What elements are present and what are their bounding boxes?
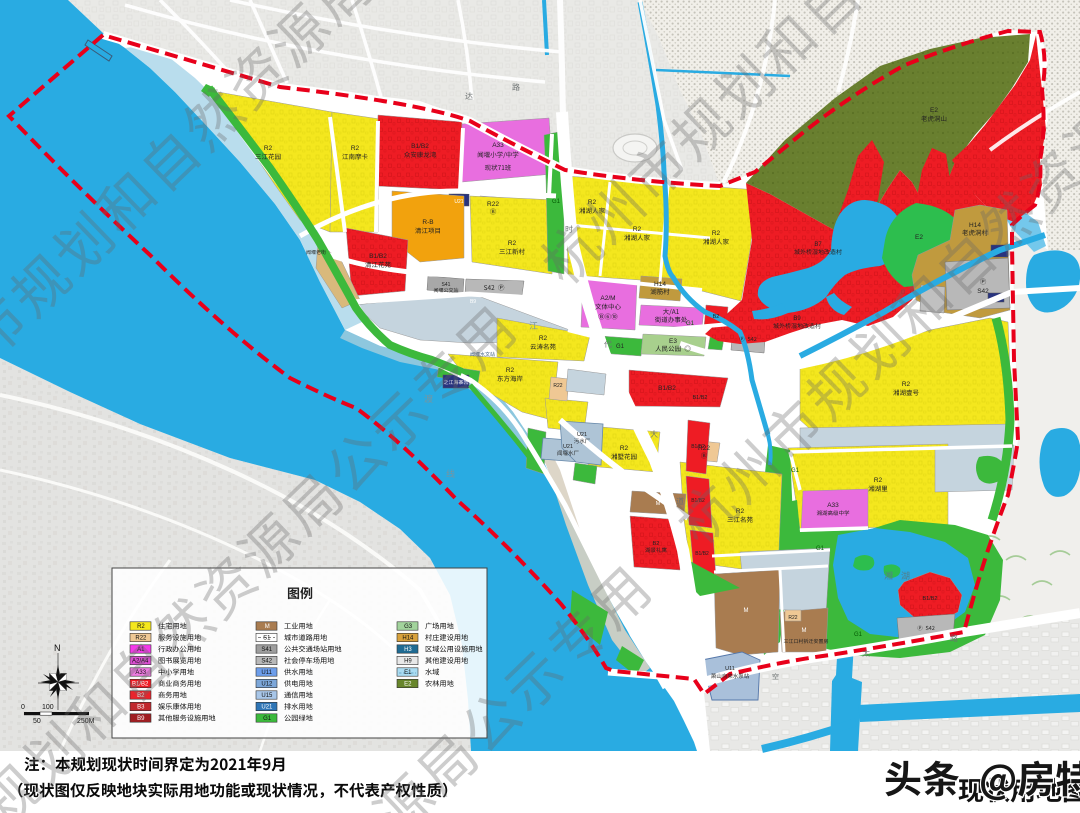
svg-text:M: M: [265, 624, 270, 630]
svg-text:E3: E3: [669, 338, 677, 345]
svg-text:100: 100: [42, 704, 54, 711]
svg-text:N: N: [54, 643, 61, 653]
svg-text:R22: R22: [487, 201, 499, 208]
svg-text:B1/B2: B1/B2: [693, 395, 708, 401]
svg-text:R2: R2: [508, 240, 517, 247]
svg-text:R22: R22: [788, 615, 797, 621]
svg-text:B2: B2: [713, 314, 720, 320]
svg-text:B7: B7: [814, 242, 822, 248]
svg-text:R2: R2: [712, 230, 721, 237]
svg-text:A2/M: A2/M: [600, 295, 615, 302]
svg-text:M: M: [656, 501, 661, 507]
svg-text:R2: R2: [506, 367, 515, 374]
svg-text:G1: G1: [686, 321, 695, 327]
svg-text:0: 0: [21, 704, 25, 711]
svg-text:R-B: R-B: [422, 219, 433, 226]
svg-text:E1: E1: [404, 670, 412, 676]
svg-text:B1/B2: B1/B2: [658, 385, 676, 392]
svg-text:U21: U21: [563, 444, 573, 450]
svg-text:U21: U21: [261, 705, 273, 711]
svg-text:E2: E2: [915, 234, 923, 241]
svg-text:S42: S42: [261, 659, 272, 665]
svg-text:H14: H14: [969, 222, 981, 229]
svg-text:H9: H9: [404, 659, 412, 665]
svg-text:U15: U15: [261, 693, 273, 699]
svg-text:U11: U11: [725, 666, 735, 672]
svg-text:H3: H3: [404, 647, 412, 653]
svg-text:R22: R22: [553, 383, 562, 389]
svg-text:E2: E2: [930, 107, 938, 114]
svg-text:B1/B2: B1/B2: [691, 444, 705, 450]
svg-text:G1: G1: [854, 632, 863, 638]
svg-text:B1/B2: B1/B2: [923, 596, 938, 602]
svg-text:R2: R2: [351, 145, 360, 152]
svg-text:B2: B2: [653, 541, 660, 547]
svg-text:B9: B9: [137, 716, 145, 722]
svg-text:U21: U21: [454, 199, 463, 205]
svg-text:S42: S42: [977, 288, 989, 295]
svg-text:R2: R2: [620, 445, 629, 452]
svg-text:R2: R2: [539, 335, 548, 342]
svg-text:M: M: [802, 628, 807, 634]
svg-text:G1: G1: [263, 716, 272, 722]
svg-text:R2: R2: [902, 381, 911, 388]
svg-text:M: M: [744, 608, 749, 614]
svg-text:G3: G3: [404, 624, 413, 630]
svg-text:50: 50: [33, 718, 41, 725]
svg-text:U11: U11: [261, 670, 272, 676]
svg-text:R2: R2: [874, 477, 883, 484]
svg-text:H14: H14: [654, 281, 666, 288]
svg-text:A33: A33: [492, 142, 504, 149]
svg-text:E2: E2: [404, 682, 412, 688]
svg-text:B9: B9: [793, 316, 801, 322]
svg-text:U21: U21: [577, 432, 587, 438]
svg-text:A33: A33: [827, 502, 839, 509]
svg-text:U12: U12: [261, 682, 273, 688]
svg-text:R2: R2: [137, 624, 145, 630]
svg-text:R2: R2: [264, 145, 273, 152]
svg-text:G1: G1: [616, 344, 625, 350]
svg-text:B1/B2: B1/B2: [695, 551, 709, 557]
svg-text:H14: H14: [402, 636, 414, 642]
svg-text:R2: R2: [633, 226, 642, 233]
svg-text:B1/B2: B1/B2: [369, 253, 387, 260]
svg-text:S41: S41: [442, 282, 451, 288]
svg-text:R22: R22: [135, 636, 147, 642]
svg-text:B3: B3: [137, 705, 145, 711]
svg-text:G1: G1: [816, 546, 825, 552]
svg-text:G1: G1: [791, 468, 800, 474]
svg-text:B9: B9: [470, 299, 476, 305]
svg-text:G1: G1: [552, 199, 561, 205]
svg-text:B1/B2: B1/B2: [411, 143, 429, 150]
svg-text:S1: S1: [263, 636, 271, 642]
svg-text:S41: S41: [261, 647, 272, 653]
